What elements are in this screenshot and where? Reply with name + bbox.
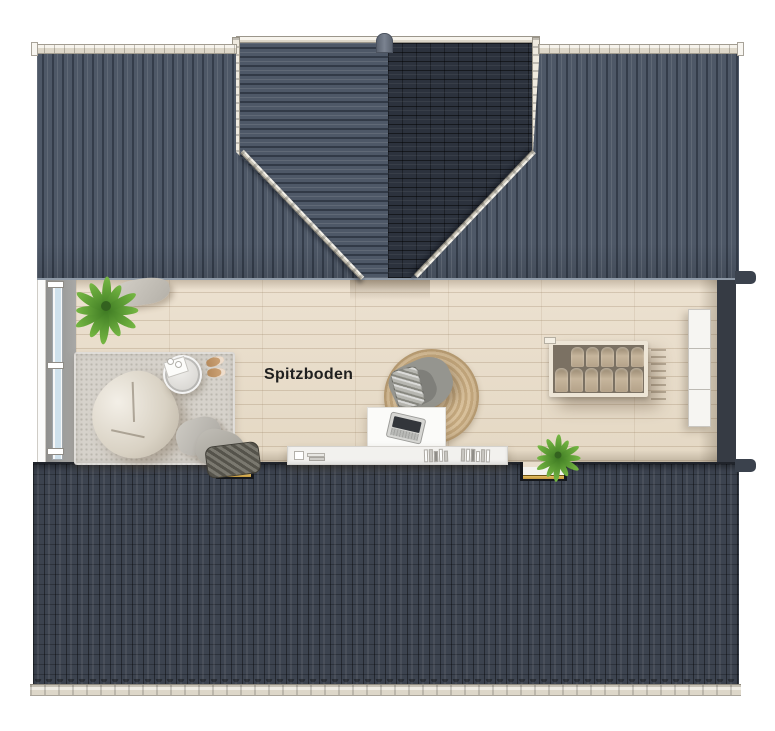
window-band xyxy=(52,283,63,460)
round-side-table xyxy=(163,355,202,394)
window-frame-tick xyxy=(47,448,64,455)
gutter-end-cap xyxy=(737,42,744,56)
book-row xyxy=(461,448,491,462)
roof-overhang-corner xyxy=(735,459,756,472)
left-wall-outer xyxy=(37,278,46,466)
roof-overhang-corner xyxy=(735,271,756,284)
book xyxy=(434,451,438,462)
stair-tread xyxy=(585,368,598,392)
book xyxy=(486,449,490,462)
slipper xyxy=(207,367,226,377)
eaves-gutter-top-right xyxy=(538,44,742,54)
book-row xyxy=(424,449,449,463)
book xyxy=(444,451,448,462)
wardrobe-cabinet xyxy=(688,309,711,427)
book xyxy=(476,451,480,462)
cup xyxy=(167,358,174,365)
stair-tread xyxy=(555,368,568,392)
roof-bottom-section xyxy=(33,462,739,684)
book xyxy=(424,449,428,462)
book xyxy=(481,449,485,462)
right-wall xyxy=(717,274,736,466)
staircase-opening xyxy=(549,341,648,397)
stairs-shadow xyxy=(651,349,666,405)
stair-treads-upper xyxy=(571,347,644,367)
book xyxy=(439,449,443,462)
flat-book xyxy=(309,457,325,461)
book xyxy=(466,449,470,462)
ridge-cap xyxy=(376,33,393,53)
book xyxy=(461,448,465,461)
stair-tread xyxy=(600,368,613,392)
window-frame-tick xyxy=(47,281,64,288)
beanbag-seam xyxy=(111,429,145,438)
decor-box xyxy=(294,451,304,460)
eaves-gutter-bottom xyxy=(30,684,741,696)
plant-pot xyxy=(555,452,562,459)
window-frame-tick xyxy=(47,362,64,369)
stair-tread xyxy=(630,368,643,392)
gutter-end-cap xyxy=(31,42,38,56)
stair-tread xyxy=(616,347,629,367)
knit-cushion xyxy=(204,441,261,479)
attic-floorplan: Spitzboden xyxy=(0,0,775,731)
book xyxy=(471,449,475,462)
stair-treads-lower xyxy=(555,368,643,392)
eaves-gutter-top-left xyxy=(33,44,237,54)
book xyxy=(429,449,433,462)
stair-newel xyxy=(544,337,556,344)
stair-tread xyxy=(615,368,628,392)
plant-pot xyxy=(101,301,111,311)
cup xyxy=(175,361,182,368)
roof-shadow-gable xyxy=(350,278,430,300)
beanbag-seam xyxy=(132,382,135,422)
stair-tread xyxy=(586,347,599,367)
stair-tread xyxy=(570,368,583,392)
stair-tread xyxy=(571,347,584,367)
stair-tread xyxy=(631,347,644,367)
stair-tread xyxy=(601,347,614,367)
room-label: Spitzboden xyxy=(264,366,353,384)
decor-stack xyxy=(294,451,328,463)
